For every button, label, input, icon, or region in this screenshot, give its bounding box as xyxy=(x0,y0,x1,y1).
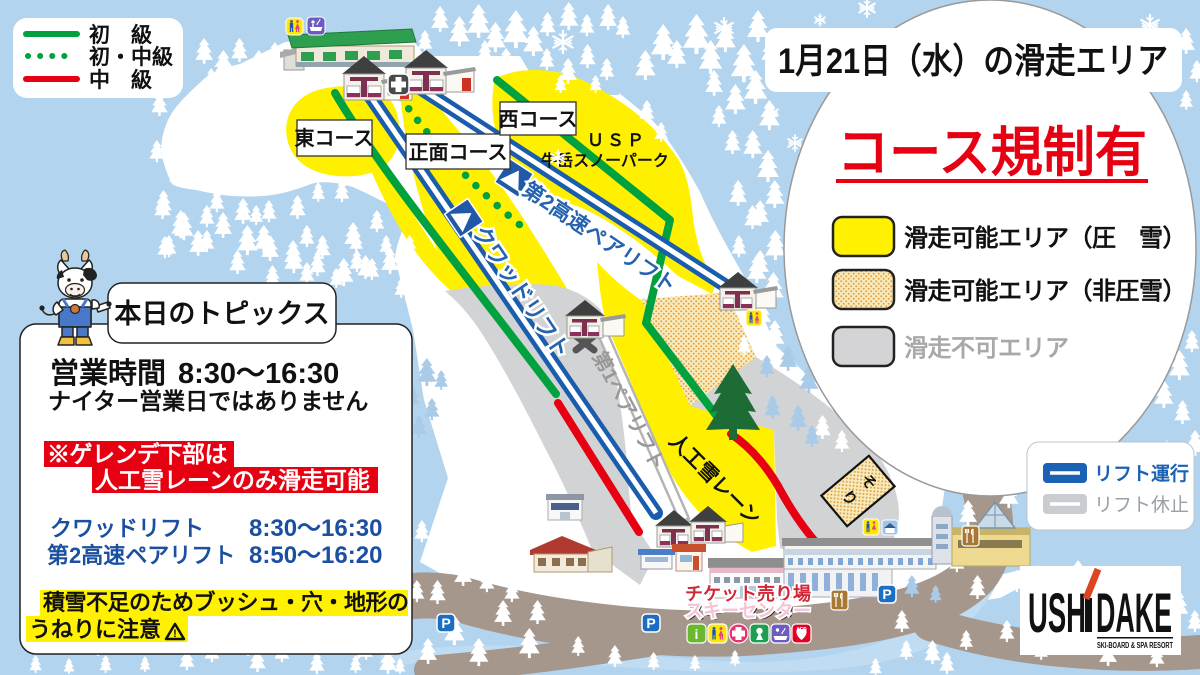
svg-text:USH: USH xyxy=(1028,581,1086,644)
svg-text:営業時間8:30～16:30: 営業時間8:30～16:30 xyxy=(50,356,339,390)
svg-text:P: P xyxy=(882,586,891,602)
svg-text:滑走不可エリア: 滑走不可エリア xyxy=(904,335,1069,362)
svg-text:滑走可能エリア（非圧雪）: 滑走可能エリア（非圧雪） xyxy=(904,277,1186,305)
svg-text:正面コース: 正面コース xyxy=(409,142,508,164)
svg-text:西コース: 西コース xyxy=(499,109,578,131)
svg-text:初 級: 初 級 xyxy=(89,23,152,47)
svg-text:!: ! xyxy=(173,628,177,640)
svg-text:ナイター営業日ではありません: ナイター営業日ではありません xyxy=(48,388,368,414)
svg-text:中 級: 中 級 xyxy=(89,68,152,92)
svg-text:滑走可能エリア（圧 雪）: 滑走可能エリア（圧 雪） xyxy=(904,224,1186,252)
svg-text:第2高速ペアリフト8:50～16:20: 第2高速ペアリフト8:50～16:20 xyxy=(47,542,382,569)
svg-text:P: P xyxy=(646,615,655,631)
svg-text:SKI-BOARD & SPA RESORT: SKI-BOARD & SPA RESORT xyxy=(1097,641,1173,650)
svg-text:うねりに注意: うねりに注意 xyxy=(29,617,161,642)
svg-text:P: P xyxy=(441,615,450,631)
svg-text:リフト運行: リフト運行 xyxy=(1094,462,1189,485)
svg-text:積雪不足のためブッシュ・穴・地形の: 積雪不足のためブッシュ・穴・地形の xyxy=(43,590,409,615)
svg-text:1月21日（水）の滑走エリア: 1月21日（水）の滑走エリア xyxy=(778,42,1168,81)
svg-text:人工雪レーンのみ滑走可能: 人工雪レーンのみ滑走可能 xyxy=(95,467,370,493)
svg-text:コース規制有: コース規制有 xyxy=(837,123,1147,183)
svg-text:i: i xyxy=(695,626,699,642)
svg-text:ＵＳＰ: ＵＳＰ xyxy=(587,131,647,150)
svg-text:AED: AED xyxy=(796,627,807,633)
svg-text:※ゲレンデ下部は: ※ゲレンデ下部は xyxy=(47,441,228,467)
svg-text:DAKE: DAKE xyxy=(1096,581,1172,644)
svg-text:初・中級: 初・中級 xyxy=(89,45,173,69)
svg-text:スキーセンター: スキーセンター xyxy=(685,601,811,621)
svg-text:東コース: 東コース xyxy=(295,127,374,150)
svg-text:牛岳スノーパーク: 牛岳スノーパーク xyxy=(541,151,669,170)
svg-text:リフト休止: リフト休止 xyxy=(1094,494,1189,516)
svg-text:本日のトピックス: 本日のトピックス xyxy=(114,299,329,329)
